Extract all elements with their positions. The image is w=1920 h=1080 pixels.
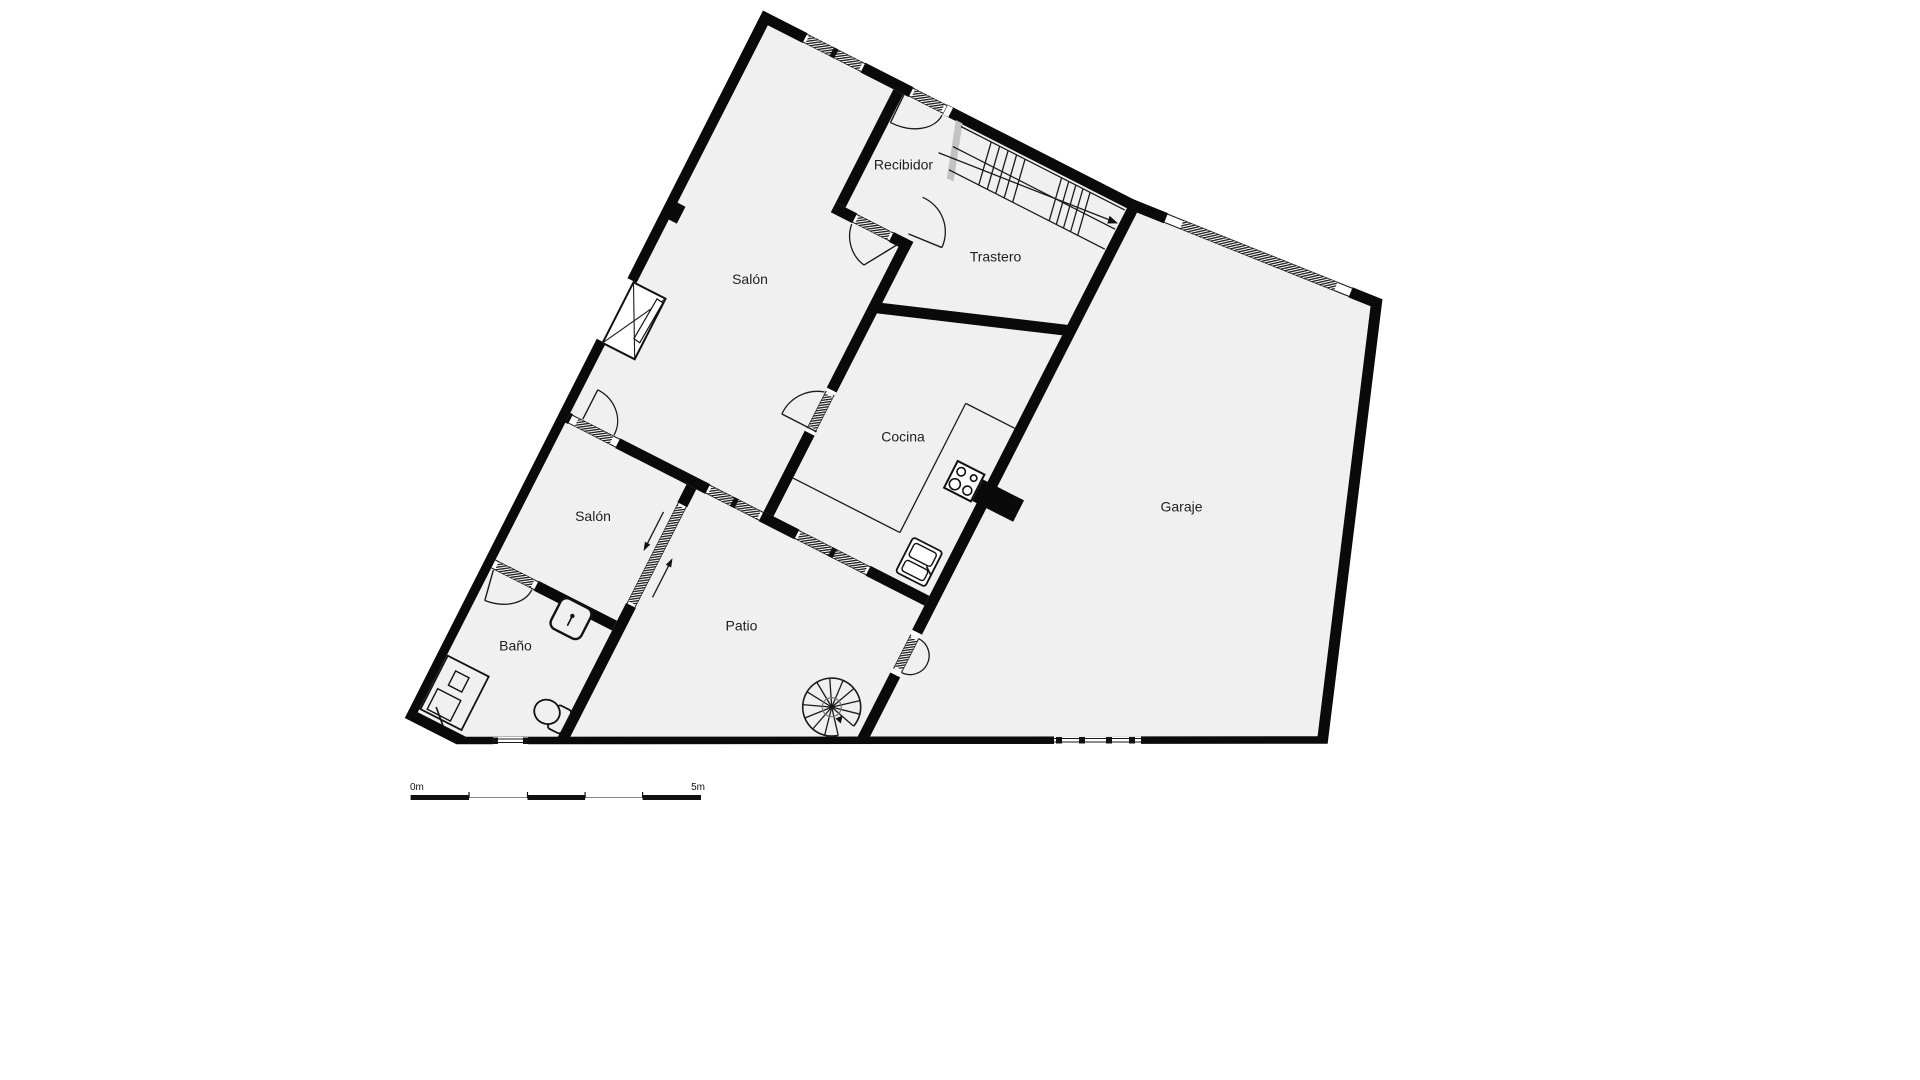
svg-text:Patio: Patio bbox=[726, 618, 758, 634]
svg-text:Salón: Salón bbox=[575, 508, 611, 524]
svg-text:Recibidor: Recibidor bbox=[874, 157, 933, 173]
svg-text:5m: 5m bbox=[691, 782, 705, 793]
svg-text:Baño: Baño bbox=[499, 638, 532, 654]
svg-text:Garaje: Garaje bbox=[1160, 499, 1202, 515]
svg-text:Salón: Salón bbox=[732, 271, 768, 287]
svg-text:Cocina: Cocina bbox=[881, 429, 925, 445]
svg-text:0m: 0m bbox=[410, 782, 424, 793]
svg-text:Trastero: Trastero bbox=[970, 249, 1022, 265]
